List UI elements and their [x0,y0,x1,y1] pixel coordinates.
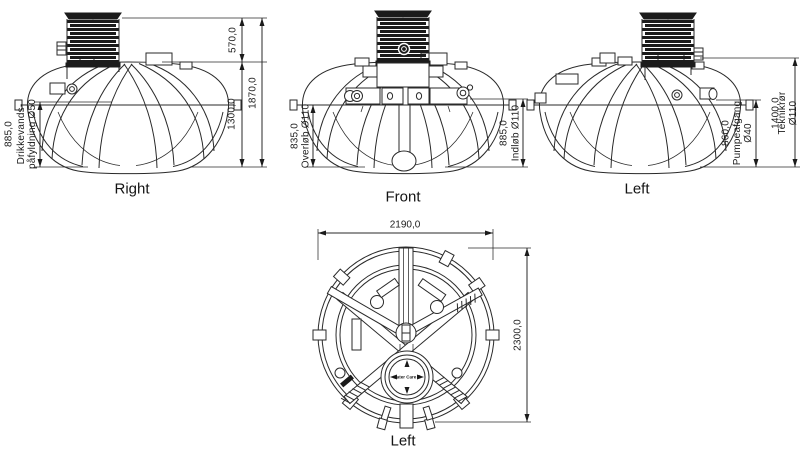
left-view-drawing [527,13,800,174]
dim-plan-height: 2300,0 [514,319,525,351]
dim-fill-value: 885,0 [5,121,16,147]
dim-inlet-value: 885,0 [500,120,511,146]
view-label-right: Right [114,181,149,198]
view-label-front: Front [385,189,420,206]
dim-pump-label: Pumpeafgang Ø40 [733,101,755,165]
dim-plan-width: 2190,0 [390,220,421,231]
dim-overflow-label: Overløb Ø110 [302,104,313,168]
dim-riser-height: 570,0 [229,27,240,53]
manhole-logo: water Care ® [393,375,421,380]
dim-inlet-label: Indløb Ø110 [512,105,523,162]
drawing-sheet: 885,0 Drikkevands- påfyldning Ø50 570,0 … [0,0,800,457]
dim-fill-label: Drikkevands- påfyldning Ø50 [17,99,39,169]
view-label-plan: Left [390,433,415,450]
front-view-drawing [290,11,528,174]
dim-pump-value: 860,0 [722,120,733,146]
plan-view-drawing [313,229,531,430]
dim-body-height: 1300,0 [228,98,239,130]
dim-total-height: 1870,0 [249,77,260,109]
dim-techpipe-label: Teknikrør Ø110 [778,92,800,135]
view-label-left: Left [624,181,649,198]
